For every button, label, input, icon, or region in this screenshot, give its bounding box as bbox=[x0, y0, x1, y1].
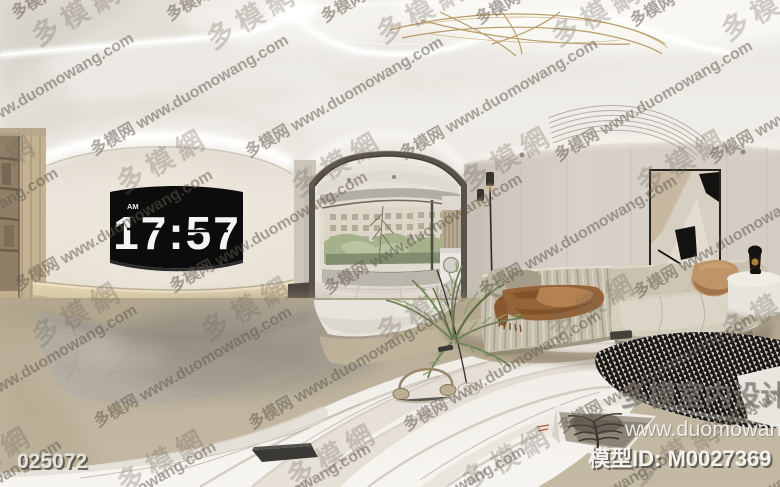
svg-text:模型ID: M0027369: 模型ID: M0027369 bbox=[588, 446, 771, 471]
svg-text:多模室内设计: 多模室内设计 bbox=[620, 379, 780, 411]
svg-text:www.duomowang.com: www.duomowang.com bbox=[624, 417, 780, 441]
svg-text:025072: 025072 bbox=[17, 450, 87, 473]
